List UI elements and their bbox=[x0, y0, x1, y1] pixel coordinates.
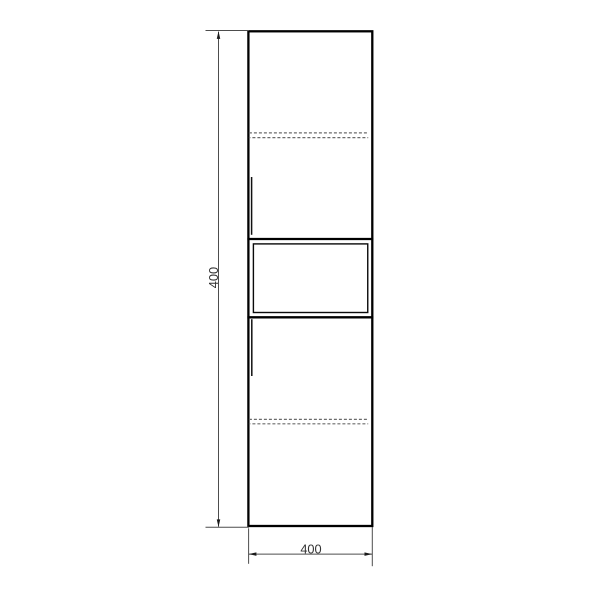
svg-text:400: 400 bbox=[300, 542, 321, 557]
svg-text:400: 400 bbox=[206, 267, 221, 288]
